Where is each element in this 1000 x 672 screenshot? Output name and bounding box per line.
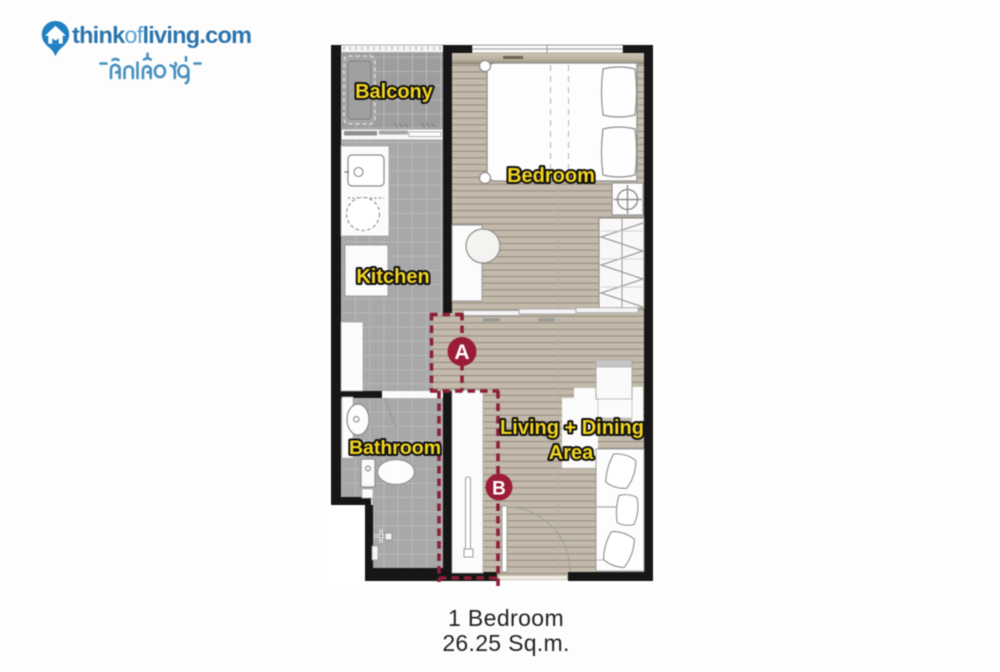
svg-text:26.25 Sq.m.: 26.25 Sq.m. [442,630,569,656]
svg-text:Kitchen: Kitchen [356,266,429,288]
svg-text:Balcony: Balcony [355,81,434,103]
svg-text:Bathroom: Bathroom [349,437,441,459]
svg-text:Living + Dining: Living + Dining [500,417,644,439]
svg-text:1 Bedroom: 1 Bedroom [448,605,564,631]
svg-text:thinkofliving.com: thinkofliving.com [72,22,251,48]
svg-text:Bedroom: Bedroom [507,165,595,187]
svg-text:Area: Area [549,442,594,464]
svg-text:A: A [454,341,469,364]
svg-text:B: B [492,479,506,500]
